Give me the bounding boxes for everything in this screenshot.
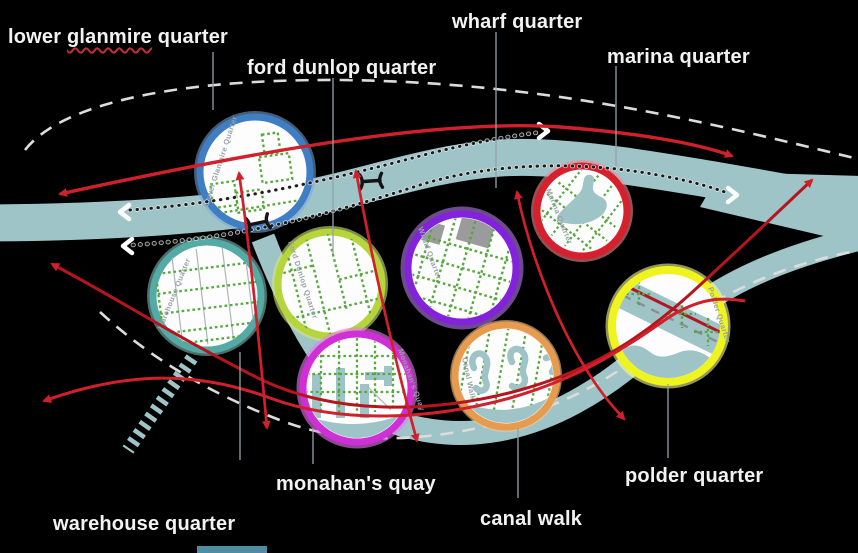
chevron-left-icon <box>123 239 132 253</box>
label-warehouse-quarter: warehouse quarter <box>53 513 235 536</box>
quarter-circle-lower-glanmire: Lower Glanmire Quarter <box>196 113 314 231</box>
quarter-circle-polder: Polder Quarter <box>608 266 733 386</box>
label-polder-quarter: polder quarter <box>625 465 763 488</box>
label-marina-quarter: marina quarter <box>607 46 750 69</box>
label-wharf-quarter: wharf quarter <box>452 11 582 34</box>
label-text: lower <box>8 26 67 48</box>
quarters-diagram: Lower Glanmire Quarter Warehouse Quarter <box>0 0 858 553</box>
label-canal-walk: canal walk <box>480 508 582 531</box>
label-text: quarter <box>152 26 228 48</box>
label-lower-glanmire-quarter: lower glanmire quarter <box>8 26 228 49</box>
weir-hatched-band <box>128 358 192 450</box>
bottom-edge-artifact <box>197 546 267 553</box>
quarter-circle-canal-walk: Canal Walk <box>452 321 560 430</box>
quarter-circle-wharf: Wharf Quarter <box>395 201 529 335</box>
label-text-spellchecked: glanmire <box>67 26 152 48</box>
label-ford-dunlop-quarter: ford dunlop quarter <box>247 57 436 80</box>
quarter-circle-ford-dunlop: Ford Dunlop Quarter <box>271 224 388 344</box>
label-monahans-quay: monahan's quay <box>276 473 436 496</box>
